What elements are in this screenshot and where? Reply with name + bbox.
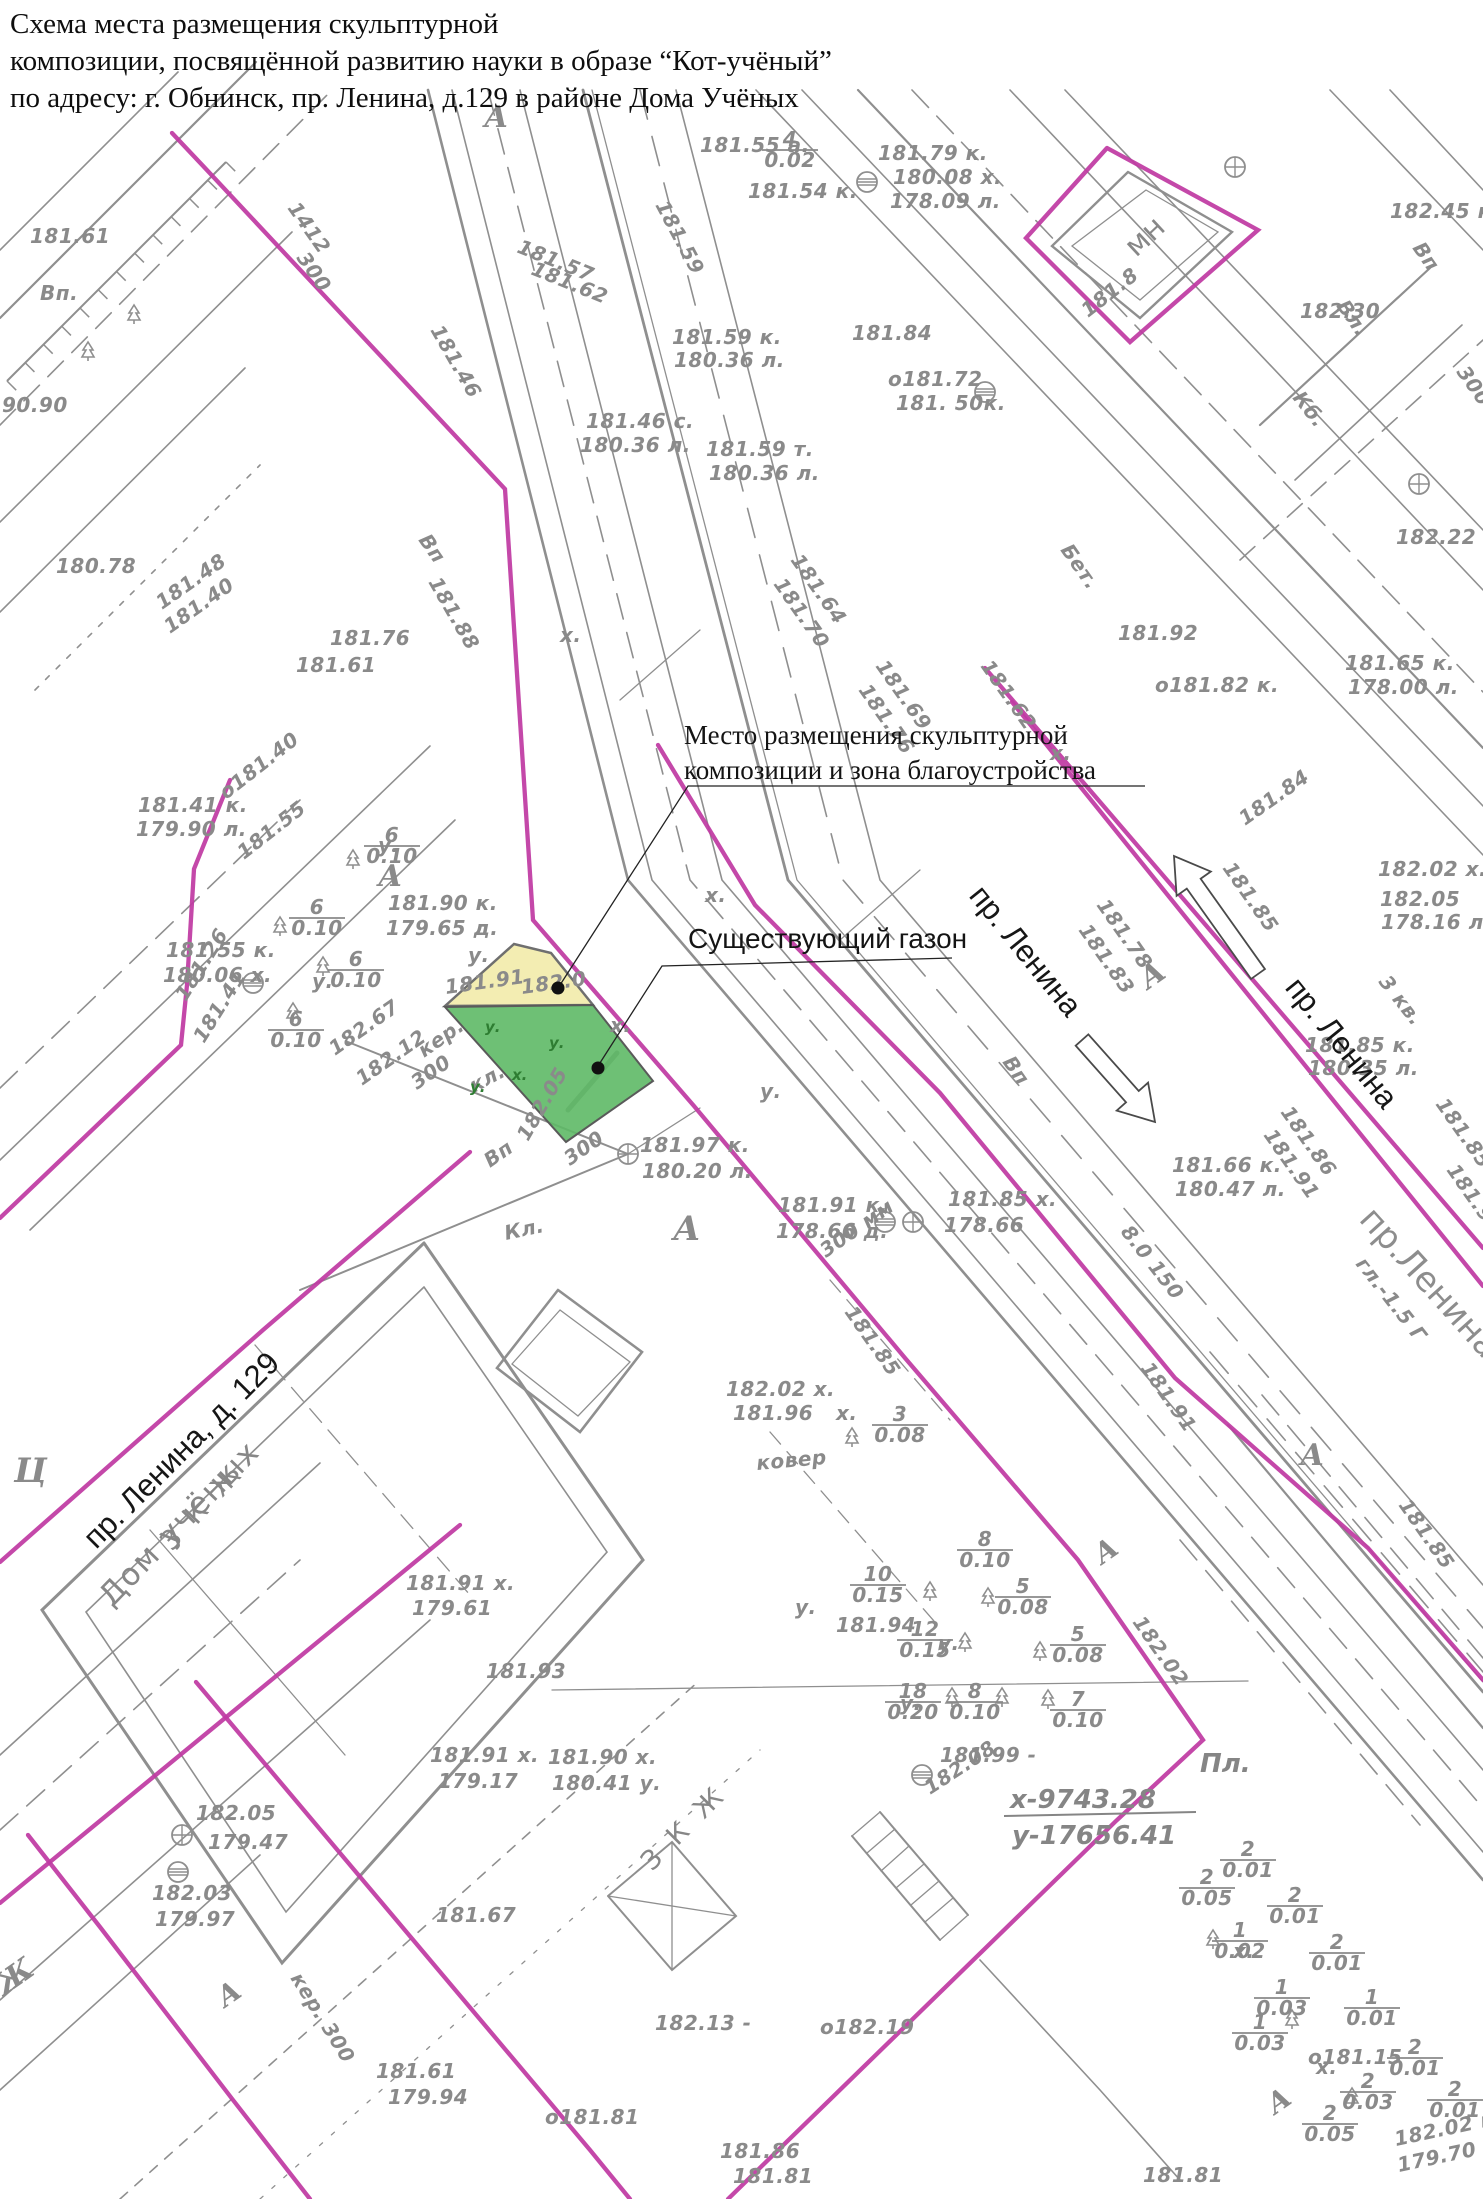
topo-line (1210, 1352, 1483, 1672)
topo-line (0, 92, 330, 425)
elevation-mark: х. (1315, 2055, 1338, 2079)
elevation-mark: 182.02 х. (726, 1377, 835, 1401)
elevation-mark: у. (468, 943, 490, 967)
elevation-mark: 181.84 (852, 321, 932, 345)
topo-line (1180, 1540, 1420, 1825)
placement-callout-line1: Место размещения скульптурной (684, 720, 1068, 750)
elevation-mark: 181.91 х. (430, 1743, 539, 1767)
elevation-mark: у. (549, 1034, 564, 1052)
fraction-denominator: 0.20 (887, 1700, 938, 1724)
elevation-mark: 180.08 х. (893, 165, 1002, 189)
elevation-mark: х. (559, 623, 582, 647)
elevation-mark: 181.76 (330, 626, 410, 650)
tick-mark (98, 290, 107, 299)
elevation-mark: 181.61 (30, 224, 110, 248)
elevation-mark: 179.17 (438, 1769, 518, 1793)
topo-line (896, 1864, 924, 1888)
tick-mark (117, 272, 126, 281)
tree-icon (82, 342, 94, 361)
elevation-mark: 181.65 к. (1345, 651, 1455, 675)
elevation-mark: 181.86 (720, 2139, 800, 2163)
white-arrow-icon (1076, 1034, 1155, 1122)
elevation-mark: 181.46 (426, 321, 487, 402)
title-block: Схема места размещения скульптурной комп… (10, 6, 990, 117)
elevation-mark: 300 (406, 1050, 455, 1094)
lawn-callout: Существующий газон (688, 923, 967, 954)
elevation-mark: 181.96 (733, 1401, 813, 1425)
title-line: по адресу: г. Обнинск, пр. Ленина, д.129… (10, 80, 990, 117)
elevation-mark: у. (485, 1018, 500, 1036)
tree-icon (347, 850, 359, 869)
elevation-mark: 179.97 (155, 1907, 235, 1931)
elevation-mark: 182.05 (196, 1801, 276, 1825)
elevation-mark: 181. 50к. (896, 391, 1006, 415)
elevation-mark: 181.59 к. (672, 325, 782, 349)
elevation-mark: 90.90 (2, 393, 68, 417)
map-letter: А (1258, 2081, 1297, 2122)
tree-count-fraction: 10.02 (1212, 1918, 1268, 1963)
elevation-mark: 181.59 т. (706, 437, 814, 461)
elevation-mark: 182.05 (1380, 887, 1460, 911)
tree-icon (924, 1582, 936, 1601)
manhole-icon (1225, 157, 1245, 177)
topo-line (255, 1345, 470, 1595)
elevation-mark: 181.88 (424, 573, 485, 654)
elevation-mark: о181.40 (214, 727, 303, 804)
tree-icon (1042, 1690, 1054, 1709)
map-letter: А (1298, 1438, 1324, 1473)
elevation-mark: 181.46 с. (586, 409, 694, 433)
fraction-denominator: 0.01 (1311, 1951, 1362, 1975)
elevation-mark: 181.81 (733, 2164, 813, 2188)
topo-line (852, 1812, 880, 1836)
coordinate-x-value: х-9743.28 (1008, 1785, 1156, 1815)
elevation-mark: 179.65 д. (386, 916, 498, 940)
tree-count-fraction: 60.10 (268, 1007, 324, 1052)
fraction-denominator: 0.10 (1052, 1708, 1103, 1732)
topo-line (1262, 1395, 1483, 1658)
elevation-mark: 3 кв. (1374, 970, 1428, 1030)
tick-mark (135, 253, 144, 262)
fraction-denominator: 0.15 (852, 1583, 903, 1607)
topo-line (1390, 90, 1483, 190)
fraction-denominator: 0.01 (1429, 2098, 1480, 2122)
fraction-denominator: 0.08 (874, 1423, 925, 1447)
elevation-mark: Вп (998, 1051, 1035, 1089)
tree-count-fraction: 20.01 (1427, 2077, 1483, 2122)
tick-mark (44, 345, 53, 354)
tree-count-fraction: 100.15 (850, 1562, 906, 1607)
title-line: Схема места размещения скульптурной (10, 6, 990, 43)
tree-count-fraction: 60.10 (289, 895, 345, 940)
elevation-mark: 300 (292, 247, 336, 296)
elevation-mark: Кл. (502, 1213, 546, 1245)
placement-callout: Место размещения скульптурной композиции… (684, 720, 1096, 785)
fraction-denominator: 0.10 (949, 1700, 1000, 1724)
elevation-mark: 180.36 л. (709, 461, 820, 485)
elevation-mark: 178.66 (944, 1213, 1024, 1237)
elevation-mark: 181.90 к. (388, 891, 498, 915)
title-line: композиции, посвящённой развитию науки в… (10, 43, 990, 80)
topo-line (497, 1290, 642, 1432)
elevation-mark: 182.03 (152, 1881, 232, 1905)
fraction-denominator: 0.10 (270, 1028, 321, 1052)
tick-mark (171, 217, 180, 226)
elevation-mark: о181.82 к. (1155, 673, 1279, 697)
elevation-mark: 300 (1452, 361, 1483, 410)
tree-icon (959, 1633, 971, 1652)
topo-line (980, 1960, 1180, 2180)
elevation-mark: 181.81 (1143, 2163, 1223, 2187)
lawn-leader-dot (592, 1062, 605, 1075)
elevation-mark: 180.36 л. (674, 348, 785, 372)
topo-line (0, 1463, 320, 1755)
topo-line (1330, 90, 1483, 250)
manhole-icon (857, 172, 877, 192)
elevation-mark: 181.93 (486, 1659, 566, 1683)
tree-count-fraction: 20.01 (1387, 2035, 1443, 2080)
tree-count-fraction: 50.08 (1050, 1622, 1106, 1667)
tree-count-fraction: 50.08 (995, 1574, 1051, 1619)
elevation-mark: 181.59 (651, 196, 710, 278)
elevation-mark: х. (609, 1013, 632, 1037)
fraction-denominator: 0.10 (366, 844, 417, 868)
elevation-mark: у. (760, 1079, 782, 1103)
tree-count-fraction: 10.01 (1344, 1985, 1400, 2030)
elevation-mark: 181.90 х. (548, 1745, 657, 1769)
fraction-denominator: 0.02 (764, 148, 815, 172)
tree-icon (982, 1588, 994, 1607)
elevation-mark: 178.00 л. (1348, 675, 1459, 699)
elevation-mark: 182.02 х. (1378, 857, 1483, 881)
label-kover: ковер (755, 1445, 827, 1475)
elevation-mark: о182.19 (820, 2015, 914, 2039)
topo-line (925, 1898, 953, 1922)
elevation-mark: 181.85 (1394, 1494, 1460, 1573)
elevation-mark: 181.61 (376, 2059, 456, 2083)
elevation-mark: 180.41 у. (552, 1771, 661, 1795)
elevation-mark: 180.78 (56, 554, 136, 578)
tree-count-fraction: 20.01 (1267, 1883, 1323, 1928)
tick-mark (7, 381, 16, 390)
elevation-mark: 181.66 к. (1172, 1153, 1282, 1177)
tree-count-fraction: 20.03 (1340, 2069, 1396, 2114)
elevation-mark: 182.45 к. (1390, 199, 1483, 223)
tree-count-fraction: 20.01 (1309, 1930, 1365, 1975)
elevation-mark: 181.97 к. (640, 1133, 750, 1157)
topo-line (1065, 90, 1483, 530)
topo-line (1010, 90, 1483, 590)
topo-line (300, 1154, 628, 1290)
manhole-icon (172, 1825, 192, 1845)
tree-count-fraction: 30.08 (872, 1402, 928, 1447)
fraction-denominator: 0.03 (1234, 2031, 1285, 2055)
placement-leader-dot (552, 982, 565, 995)
topo-line (86, 1287, 607, 1912)
elevation-mark: 181.85 (840, 1301, 906, 1380)
tick-mark (226, 162, 235, 171)
manhole-icon (168, 1862, 188, 1882)
fraction-denominator: 0.01 (1269, 1904, 1320, 1928)
elevation-mark: 182.22 (1396, 525, 1476, 549)
fraction-denominator: 0.08 (1052, 1643, 1103, 1667)
label-pl: Пл. (1200, 1749, 1251, 1779)
elevation-mark: Вп (479, 1135, 517, 1172)
elevation-mark: 178.09 л. (890, 189, 1001, 213)
elevation-mark: 180.20 л. (642, 1159, 753, 1183)
tick-mark (62, 326, 71, 335)
tree-count-fraction: 80.10 (947, 1679, 1003, 1724)
tick-mark (80, 308, 89, 317)
building-label-mn: мн (1118, 209, 1173, 263)
boundary-line (0, 780, 230, 1218)
tree-count-fraction: 20.01 (1220, 1837, 1276, 1882)
fraction-denominator: 0.01 (1222, 1858, 1273, 1882)
elevation-mark: Бет. (1056, 539, 1104, 594)
topo-line (940, 1915, 968, 1940)
fraction-denominator: 0.01 (1346, 2006, 1397, 2030)
elevation-mark: Вп (414, 529, 451, 567)
street-label-lenina-1: пр. Ленина (963, 878, 1090, 1023)
elevation-mark: х. (704, 883, 727, 907)
topo-line (1260, 268, 1430, 425)
elevation-mark: 178.16 л. (1381, 910, 1483, 934)
elevation-mark: кер. 300 (286, 1968, 360, 2067)
site-plan-page: 181.61Вп.1412300181.46181.57181.62181.88… (0, 0, 1483, 2199)
elevation-mark: 181.85 (1431, 1093, 1483, 1172)
topo-line (452, 90, 1483, 1852)
coordinate-y-value: у-17656.41 (1012, 1821, 1176, 1851)
tick-mark (153, 235, 162, 244)
elevation-mark: 181.85 х. (948, 1187, 1057, 1211)
placement-callout-line2: композиции и зона благоустройства (684, 755, 1096, 785)
elevation-mark: 179.94 (388, 2085, 468, 2109)
elevation-mark: 179.61 (412, 1596, 492, 1620)
site-plan-map: 181.61Вп.1412300181.46181.57181.62181.88… (0, 0, 1483, 2199)
manhole-icon (618, 1144, 638, 1164)
elevation-mark: 181.54 к. (748, 179, 858, 203)
elevation-mark: Вп. (40, 281, 78, 305)
fraction-denominator: 0.02 (1214, 1939, 1265, 1963)
fraction-denominator: 0.08 (997, 1595, 1048, 1619)
elevation-mark: Вп (1408, 237, 1445, 275)
elevation-mark: о181.81 (545, 2105, 639, 2129)
fraction-denominator: 0.05 (1181, 1886, 1232, 1910)
elevation-mark: у. (470, 1078, 485, 1096)
topo-line (911, 1881, 939, 1905)
tree-icon (274, 917, 286, 936)
elevation-mark: х. (511, 1066, 527, 1084)
topo-line (1228, 1425, 1483, 1728)
map-letter: А (208, 1974, 247, 2015)
tree-icon (1034, 1642, 1046, 1661)
tree-icon (846, 1428, 858, 1447)
boundary-line (0, 1152, 470, 1562)
tick-mark (25, 363, 34, 372)
topo-line (881, 1846, 909, 1871)
manhole-icon (1409, 474, 1429, 494)
elevation-mark: 179.90 л. (136, 817, 247, 841)
elevation-mark: 181.79 к. (878, 141, 988, 165)
tree-count-fraction: 70.10 (1050, 1687, 1106, 1732)
elevation-mark: 180.47 л. (1175, 1177, 1286, 1201)
tree-icon (128, 305, 140, 324)
elevation-mark: о181.72 (888, 367, 982, 391)
map-letter: А (670, 1209, 701, 1249)
elevation-mark: 181.84 (1234, 764, 1313, 830)
elevation-mark: 181.94 (836, 1613, 916, 1637)
fraction-denominator: 0.10 (291, 916, 342, 940)
fraction-denominator: 0.03 (1342, 2090, 1393, 2114)
tree-count-fraction: 60.10 (364, 823, 420, 868)
fraction-denominator: 0.10 (959, 1548, 1010, 1572)
fraction-denominator: 0.15 (899, 1638, 950, 1662)
elevation-mark: 180.36 л. (580, 433, 691, 457)
fraction-denominator: 0.10 (330, 968, 381, 992)
fraction-denominator: 0.05 (1304, 2122, 1355, 2146)
coordinate-callout: х-9743.28 у-17656.41 (1004, 1785, 1196, 1851)
elevation-mark: х. (835, 1401, 858, 1425)
tick-mark (190, 199, 199, 208)
elevation-mark: 182.13 - (655, 2011, 751, 2035)
elevation-mark: 181.67 (436, 1903, 516, 1927)
tree-count-fraction: 60.10 (328, 947, 384, 992)
elevation-mark: 181.92 (1118, 621, 1198, 645)
elevation-mark: у. (795, 1595, 817, 1619)
elevation-mark: 181.61 (296, 653, 376, 677)
fraction-denominator: 0.01 (1389, 2056, 1440, 2080)
elevation-mark: 179.47 (208, 1830, 288, 1854)
lawn-callout-text: Существующий газон (688, 923, 967, 954)
elevation-mark: 181.91 х. (406, 1571, 515, 1595)
map-letter: Ж (0, 1951, 41, 2004)
map-letter: Ц (13, 1451, 48, 1491)
manhole-icon (903, 1212, 923, 1232)
topo-line (867, 1829, 895, 1853)
tree-count-fraction: 80.10 (957, 1527, 1013, 1572)
map-letter: А (1085, 1531, 1124, 1572)
elevation-mark: 8.0 150 (1116, 1220, 1189, 1304)
